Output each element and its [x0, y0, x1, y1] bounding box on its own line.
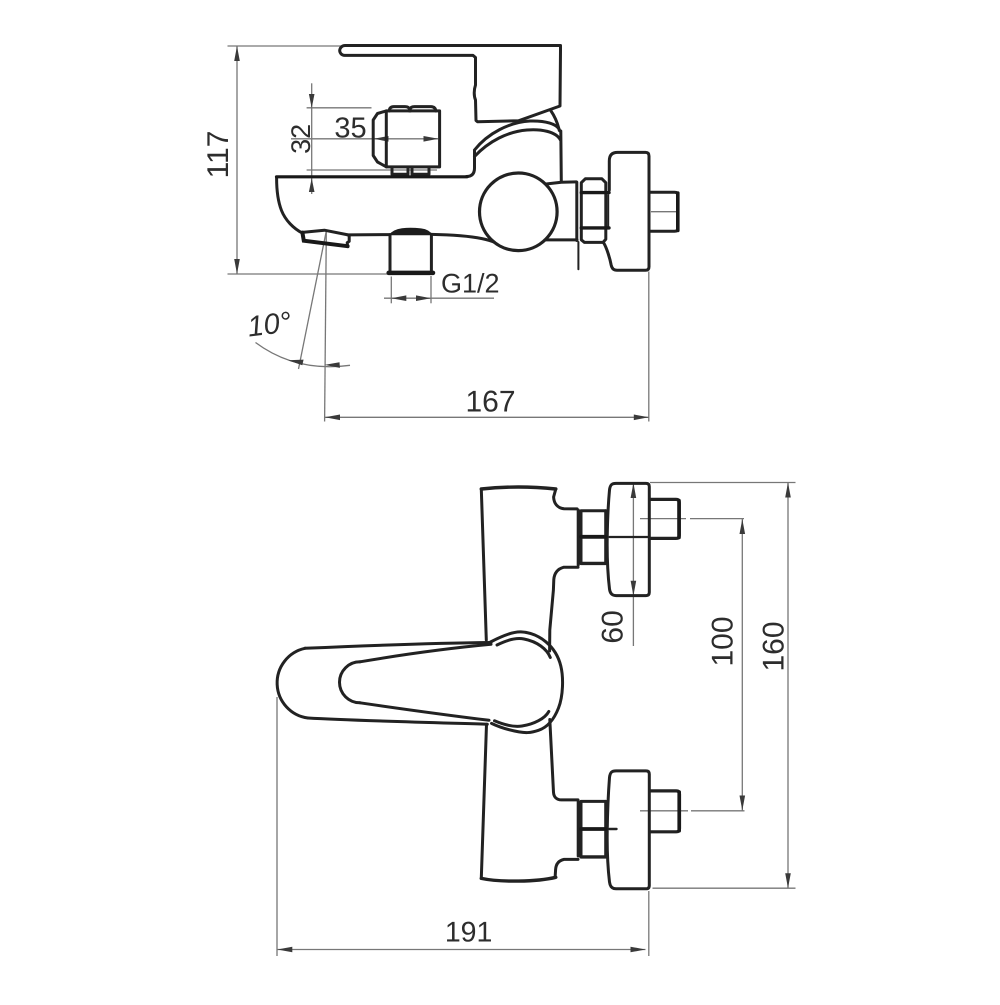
svg-text:160: 160 — [757, 621, 790, 671]
svg-text:117: 117 — [202, 131, 235, 179]
svg-text:191: 191 — [445, 917, 493, 949]
svg-text:32: 32 — [286, 124, 316, 154]
svg-text:G1/2: G1/2 — [441, 269, 500, 299]
svg-text:35: 35 — [334, 113, 366, 145]
svg-text:60: 60 — [596, 610, 629, 643]
svg-text:100: 100 — [706, 616, 739, 666]
svg-text:167: 167 — [465, 386, 515, 419]
svg-text:10°: 10° — [246, 306, 293, 343]
